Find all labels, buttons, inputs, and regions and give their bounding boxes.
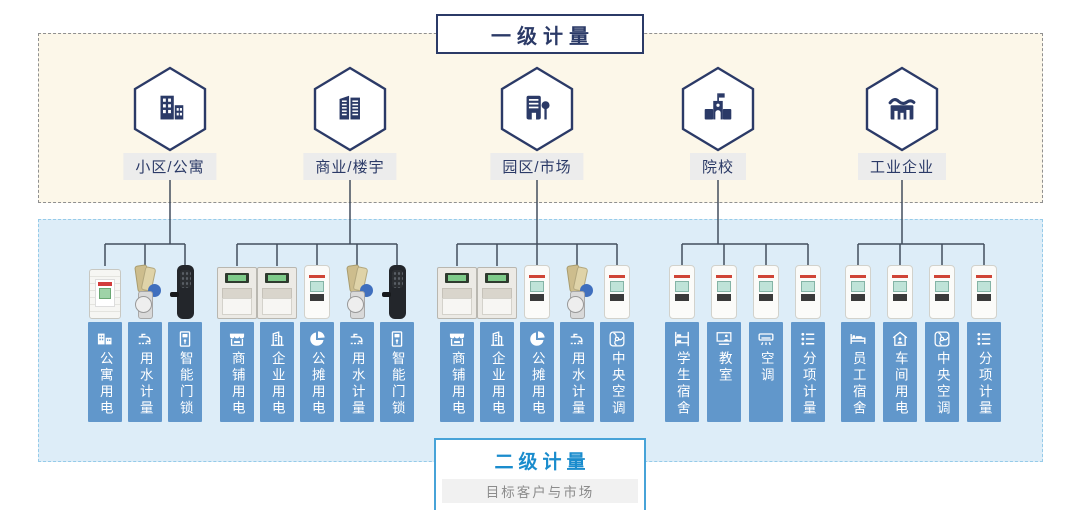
usage-tag: 公摊用电: [520, 322, 554, 422]
usage-tag: 员工宿舍: [841, 322, 875, 422]
usage-tag: 中央空调: [925, 322, 959, 422]
usage-tag: 用水计量: [340, 322, 374, 422]
usage-tag-label: 智能门锁: [390, 351, 404, 417]
category-label: 小区/公寓: [123, 153, 216, 180]
water-tap-icon: [135, 329, 155, 349]
usage-tag: 智能门锁: [168, 322, 202, 422]
smart-lock-icon: [387, 329, 407, 349]
prepaid-card-meter-device: [524, 257, 550, 319]
usage-tag-label: 中央空调: [935, 351, 949, 417]
usage-tag: 商铺用电: [220, 322, 254, 422]
meter-column: 智能门锁: [165, 257, 205, 422]
meter-column: 分项计量: [787, 257, 829, 422]
usage-tag-label: 教室: [717, 351, 731, 384]
meter-column: 公寓用电: [85, 257, 125, 422]
ac-unit-icon: [756, 329, 776, 349]
water-meter-device: [559, 257, 595, 319]
prepaid-card-meter-device: [669, 257, 695, 319]
category-label: 工业企业: [858, 153, 946, 180]
shop-awning-icon: [227, 329, 247, 349]
three-phase-meter-device: [437, 257, 477, 319]
usage-tag: 公寓用电: [88, 322, 122, 422]
smart-lock-device: [177, 257, 194, 319]
usage-tag-label: 企业用电: [270, 351, 284, 417]
usage-tag-label: 分项计量: [977, 351, 991, 417]
fan-icon: [607, 329, 627, 349]
secondary-title-box: 二级计量 目标客户与市场: [434, 438, 646, 510]
usage-tag-label: 空调: [759, 351, 773, 384]
meter-column: 企业用电: [477, 257, 517, 422]
three-phase-meter-device: [217, 257, 257, 319]
usage-tag-label: 公摊用电: [310, 351, 324, 417]
meter-column: 用水计量: [337, 257, 377, 422]
usage-tag: 教室: [707, 322, 741, 422]
usage-tag: 企业用电: [260, 322, 294, 422]
meter-column: 车间用电: [879, 257, 921, 422]
prepaid-card-meter-device: [753, 257, 779, 319]
apartment-power-icon: [95, 329, 115, 349]
usage-tag-label: 公寓用电: [98, 351, 112, 417]
usage-tag-label: 企业用电: [490, 351, 504, 417]
meter-column: 教室: [703, 257, 745, 422]
usage-tag-label: 学生宿舍: [675, 351, 689, 417]
usage-tag-label: 商铺用电: [230, 351, 244, 417]
usage-tag-label: 中央空调: [610, 351, 624, 417]
category-hexagon: [680, 66, 756, 152]
usage-tag: 企业用电: [480, 322, 514, 422]
prepaid-card-meter-device: [304, 257, 330, 319]
prepaid-card-meter-device: [929, 257, 955, 319]
prepaid-card-meter-device: [971, 257, 997, 319]
usage-tag-label: 员工宿舍: [851, 351, 865, 417]
category-label: 院校: [690, 153, 746, 180]
pie-share-icon: [307, 329, 327, 349]
primary-title: 一级计量: [485, 20, 595, 49]
meter-column: 公摊用电: [297, 257, 337, 422]
bed-icon: [848, 329, 868, 349]
water-meter-device: [127, 257, 163, 319]
meter-group: 商铺用电企业用电公摊用电用水计量中央空调: [437, 257, 637, 422]
usage-tag: 公摊用电: [300, 322, 334, 422]
usage-tag-label: 用水计量: [138, 351, 152, 417]
category-label: 商业/楼宇: [303, 153, 396, 180]
classroom-board-icon: [714, 329, 734, 349]
diagram-canvas: 一级计量 小区/公寓商业/楼宇园区/市场院校工业企业 公寓用电用水计量智能门锁商…: [0, 0, 1080, 510]
enterprise-building-icon: [487, 329, 507, 349]
factory-chart-icon: [864, 66, 940, 152]
secondary-subtitle: 目标客户与市场: [442, 479, 638, 503]
prepaid-card-meter-device: [845, 257, 871, 319]
meter-column: 企业用电: [257, 257, 297, 422]
primary-title-box: 一级计量: [436, 14, 644, 54]
meter-column: 中央空调: [597, 257, 637, 422]
din-energy-meter-device: [89, 257, 121, 319]
workshop-house-icon: [890, 329, 910, 349]
meter-column: 空调: [745, 257, 787, 422]
water-meter-device: [339, 257, 375, 319]
water-tap-icon: [567, 329, 587, 349]
meter-column: 中央空调: [921, 257, 963, 422]
shop-awning-icon: [447, 329, 467, 349]
meter-column: 公摊用电: [517, 257, 557, 422]
usage-tag-label: 公摊用电: [530, 351, 544, 417]
school-building-icon: [680, 66, 756, 152]
water-tap-icon: [347, 329, 367, 349]
category-label: 园区/市场: [490, 153, 583, 180]
usage-tag: 商铺用电: [440, 322, 474, 422]
meter-group: 学生宿舍教室空调分项计量: [661, 257, 829, 422]
itemized-list-icon: [798, 329, 818, 349]
bunk-bed-icon: [672, 329, 692, 349]
meter-column: 商铺用电: [217, 257, 257, 422]
pie-share-icon: [527, 329, 547, 349]
meter-column: 用水计量: [125, 257, 165, 422]
usage-tag-label: 车间用电: [893, 351, 907, 417]
meter-column: 分项计量: [963, 257, 1005, 422]
prepaid-card-meter-device: [795, 257, 821, 319]
usage-tag: 智能门锁: [380, 322, 414, 422]
usage-tag: 车间用电: [883, 322, 917, 422]
usage-tag: 分项计量: [791, 322, 825, 422]
usage-tag: 分项计量: [967, 322, 1001, 422]
itemized-list-icon: [974, 329, 994, 349]
three-phase-meter-device: [257, 257, 297, 319]
usage-tag-label: 用水计量: [570, 351, 584, 417]
smart-lock-device: [389, 257, 406, 319]
commercial-towers-icon: [312, 66, 388, 152]
meter-group: 公寓用电用水计量智能门锁: [85, 257, 205, 422]
usage-tag-label: 用水计量: [350, 351, 364, 417]
meter-column: 智能门锁: [377, 257, 417, 422]
meter-group: 员工宿舍车间用电中央空调分项计量: [837, 257, 1005, 422]
fan-icon: [932, 329, 952, 349]
meter-group: 商铺用电企业用电公摊用电用水计量智能门锁: [217, 257, 417, 422]
meter-column: 学生宿舍: [661, 257, 703, 422]
usage-tag-label: 商铺用电: [450, 351, 464, 417]
category-hexagon: [312, 66, 388, 152]
prepaid-card-meter-device: [604, 257, 630, 319]
usage-tag: 中央空调: [600, 322, 634, 422]
category-hexagon: [499, 66, 575, 152]
residential-buildings-icon: [132, 66, 208, 152]
usage-tag: 用水计量: [560, 322, 594, 422]
prepaid-card-meter-device: [711, 257, 737, 319]
three-phase-meter-device: [477, 257, 517, 319]
smart-lock-icon: [175, 329, 195, 349]
secondary-title: 二级计量: [442, 447, 638, 474]
usage-tag: 学生宿舍: [665, 322, 699, 422]
category-hexagon: [864, 66, 940, 152]
enterprise-building-icon: [267, 329, 287, 349]
meter-column: 商铺用电: [437, 257, 477, 422]
meter-column: 用水计量: [557, 257, 597, 422]
prepaid-card-meter-device: [887, 257, 913, 319]
usage-tag-label: 智能门锁: [178, 351, 192, 417]
category-hexagon: [132, 66, 208, 152]
usage-tag: 空调: [749, 322, 783, 422]
campus-building-tree-icon: [499, 66, 575, 152]
usage-tag-label: 分项计量: [801, 351, 815, 417]
usage-tag: 用水计量: [128, 322, 162, 422]
meter-column: 员工宿舍: [837, 257, 879, 422]
